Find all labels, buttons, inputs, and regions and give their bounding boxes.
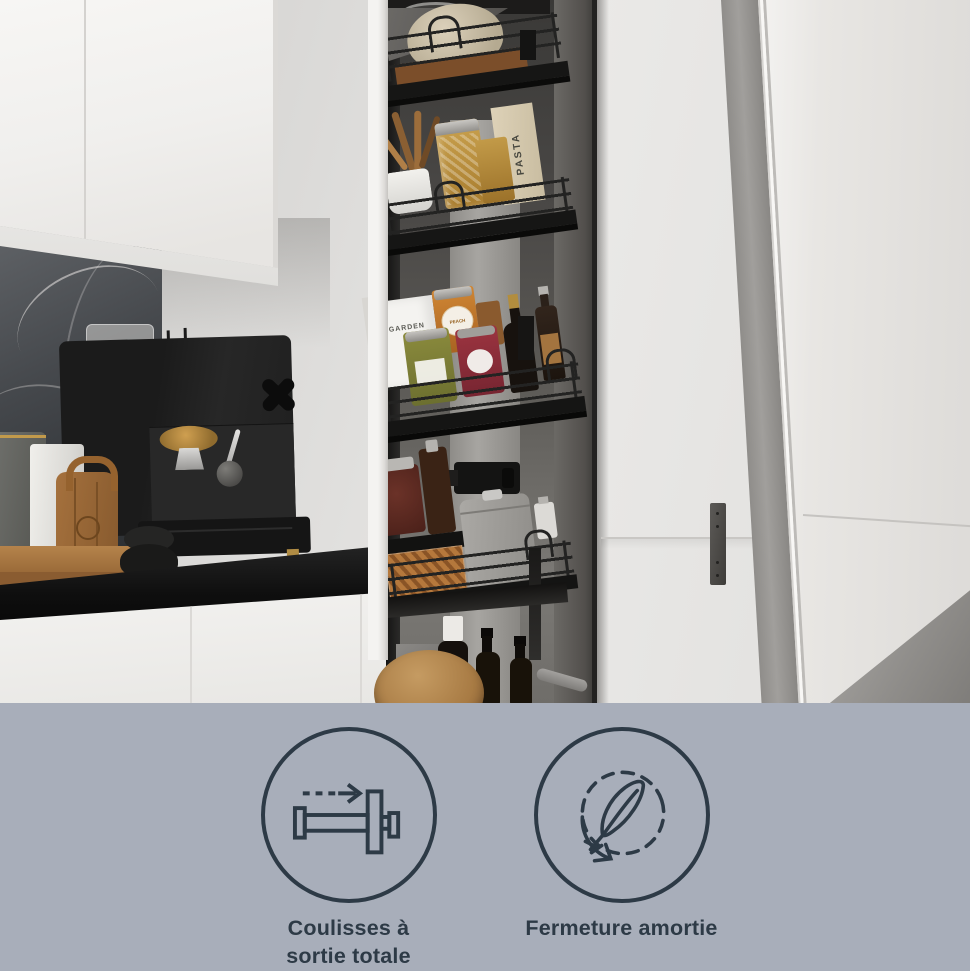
product-image: PASTA (0, 0, 970, 971)
jar-lid (433, 286, 472, 301)
wire-basket-pasta: PASTA (369, 93, 578, 256)
machine-x-knob (256, 373, 301, 418)
feature-soft-close: Fermeture amortie (500, 727, 743, 971)
kitchen-photo: PASTA (0, 0, 970, 703)
dark-bottle (510, 636, 532, 703)
feature-caption: Fermeture amortie (525, 915, 717, 943)
pantry-door-edge (368, 0, 388, 660)
soft-close-feather-icon (561, 754, 683, 876)
bin-pull (482, 489, 503, 501)
wall-bracket (520, 30, 536, 60)
feature-caption-line2: sortie totale (286, 943, 410, 971)
pantry-side-shadow (597, 0, 609, 703)
drawer-seam (360, 594, 362, 703)
feature-caption: Coulisses à sortie totale (286, 915, 410, 971)
jug-gold-rim (0, 435, 46, 438)
mounting-plate (710, 503, 726, 585)
plate-screw (716, 512, 719, 515)
wall-bracket (518, 316, 534, 360)
cabinet-right-edge (273, 0, 278, 268)
drawer-seam (190, 602, 192, 703)
tray-top (0, 546, 134, 572)
feature-full-extension: Coulisses à sortie totale (227, 727, 470, 971)
peach-label-text: PEACH (449, 317, 465, 324)
full-extension-slide-icon (291, 773, 407, 857)
full-extension-icon-circle (261, 727, 437, 903)
jar-label (465, 348, 494, 375)
pullout-pantry: PASTA (368, 0, 600, 703)
seam-shadow (601, 539, 763, 549)
feature-caption-line1: Coulisses à (286, 915, 410, 943)
soft-close-icon-circle (534, 727, 710, 903)
bag-stamp (76, 516, 100, 540)
feature-caption-line1: Fermeture amortie (525, 915, 717, 943)
plate-screw (716, 561, 719, 564)
bottle-cap (538, 496, 549, 504)
cabinet-door-seam (84, 0, 86, 242)
bottle-body (510, 658, 532, 703)
wire-basket-jams: GARDEN PEACH (367, 267, 588, 452)
plate-screw (716, 574, 719, 577)
bottle-clamp (425, 439, 438, 452)
pasta-box-label: PASTA (510, 132, 527, 176)
bottle-cap-white (443, 616, 463, 641)
right-section (597, 0, 970, 703)
plate-screw (716, 525, 719, 528)
features-band: Coulisses à sortie totale Fermeture amo (0, 703, 970, 971)
bin-lid-line (460, 504, 530, 515)
